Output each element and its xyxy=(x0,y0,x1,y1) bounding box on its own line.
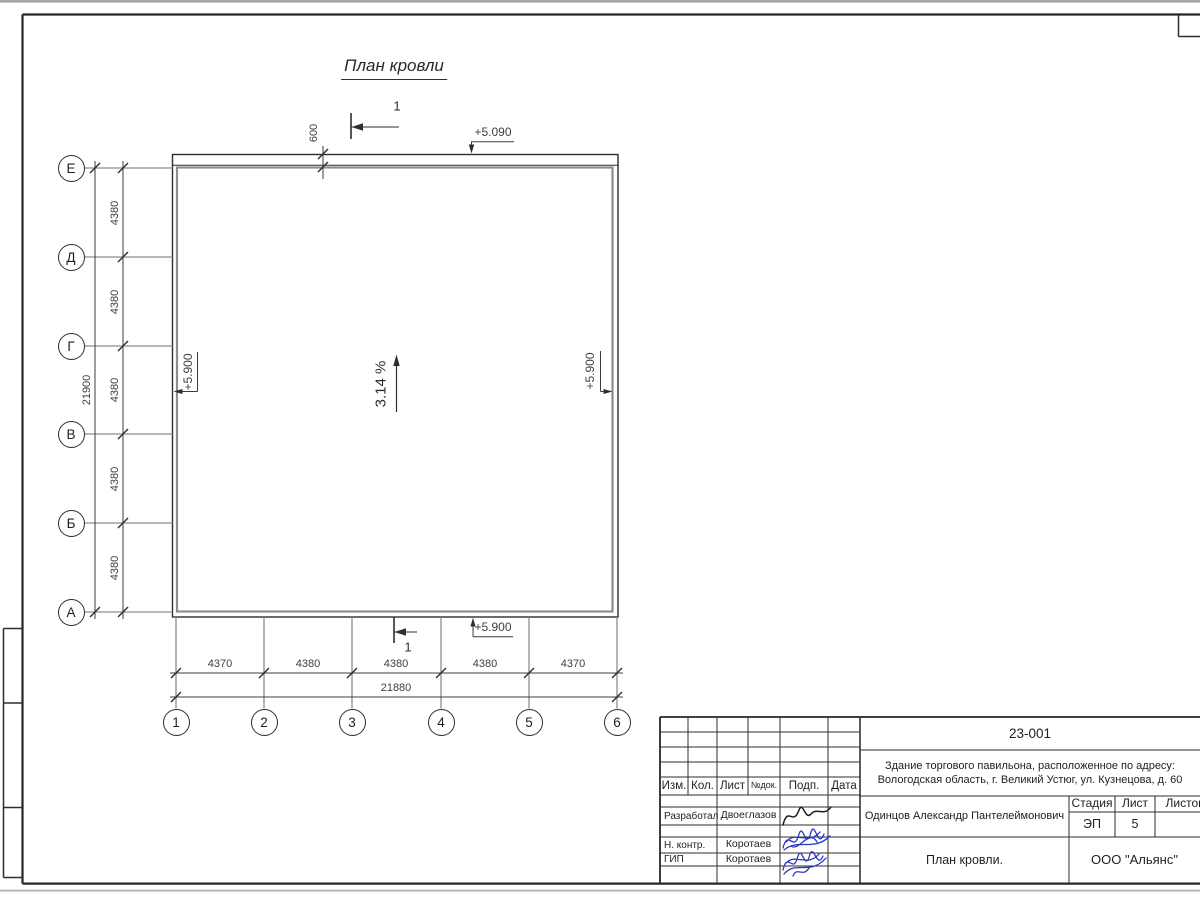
axis-circle-col-3: 3 xyxy=(339,709,366,736)
col-dim-label: 4380 xyxy=(296,658,320,670)
row-dim-label: 4380 xyxy=(109,200,121,224)
row-total-dim-label: 21900 xyxy=(81,375,93,406)
tb-sheet-value: 5 xyxy=(1115,812,1155,837)
col-dim-label: 4370 xyxy=(208,658,232,670)
tb-role-nkontr: Н. контр. xyxy=(660,837,717,853)
col-dim-label: 4370 xyxy=(561,658,585,670)
axis-circle-row-e: Е xyxy=(58,155,85,182)
tb-name-gip: Коротаев xyxy=(717,853,780,866)
overhang-dim-label: 600 xyxy=(308,124,320,142)
axis-circle-col-6: 6 xyxy=(604,709,631,736)
tb-col-header-izm: Изм. xyxy=(660,777,688,795)
slope-label: 3.14 % xyxy=(373,361,390,408)
tb-object-address: Здание торгового павильона, расположенно… xyxy=(860,750,1200,796)
tb-sheet-title: План кровли. xyxy=(860,837,1069,883)
row-dim-label: 4380 xyxy=(109,378,121,402)
axis-circle-row-b: Б xyxy=(58,510,85,537)
signature-gip xyxy=(779,846,833,880)
axis-label: 5 xyxy=(525,715,533,730)
tb-role-gip: ГИП xyxy=(660,853,717,866)
elevation-left-label: +5.900 xyxy=(181,353,195,390)
tb-approver: Одинцов Александр Пантелеймонович xyxy=(860,796,1069,837)
axis-circle-row-v: В xyxy=(58,421,85,448)
tb-col-header-list: Лист xyxy=(717,777,748,795)
tb-name-razrabotal: Двоеглазов xyxy=(717,807,780,825)
axis-label: Д xyxy=(66,250,75,265)
axis-circle-col-1: 1 xyxy=(163,709,190,736)
tb-col-header-data: Дата xyxy=(828,777,860,795)
row-dim-label: 4380 xyxy=(109,555,121,579)
axis-label: Е xyxy=(66,161,75,176)
tb-sheets-label: Листов xyxy=(1155,796,1200,812)
col-dim-label: 4380 xyxy=(473,658,497,670)
axis-label: А xyxy=(66,605,75,620)
elevation-bottom-label: +5.900 xyxy=(474,620,511,634)
axis-label: В xyxy=(66,427,75,442)
axis-circle-row-a: А xyxy=(58,599,85,626)
axis-label: 6 xyxy=(613,715,621,730)
tb-stage-label: Стадия xyxy=(1069,796,1115,812)
col-dim-label: 4380 xyxy=(384,658,408,670)
axis-label: Г xyxy=(67,339,74,354)
axis-label: 2 xyxy=(260,715,268,730)
tb-sheets-value xyxy=(1155,812,1200,837)
col-total-dim-label: 21880 xyxy=(381,682,412,694)
tb-company: ООО "Альянс" xyxy=(1069,837,1200,883)
section-mark-bottom-label: 1 xyxy=(404,640,411,655)
axis-circle-col-4: 4 xyxy=(428,709,455,736)
tb-stage-value: ЭП xyxy=(1069,812,1115,837)
section-mark-top-label: 1 xyxy=(393,99,400,114)
axis-circle-col-2: 2 xyxy=(251,709,278,736)
axis-circle-col-5: 5 xyxy=(516,709,543,736)
row-dim-label: 4380 xyxy=(109,466,121,490)
axis-circle-row-d: Д xyxy=(58,244,85,271)
tb-name-nkontr: Коротаев xyxy=(717,837,780,853)
tb-col-header-podp: Подп. xyxy=(780,777,828,795)
axis-label: Б xyxy=(67,516,76,531)
drawing-sheet: План кровли +5.090 +5.900 +5.900 +5.900 … xyxy=(0,0,1200,900)
axis-label: 1 xyxy=(172,715,180,730)
tb-doc-number: 23-001 xyxy=(860,717,1200,750)
tb-address-line1: Здание торгового павильона, расположенно… xyxy=(885,759,1175,773)
tb-role-razrabotal: Разработал xyxy=(660,807,717,825)
plan-title: План кровли xyxy=(341,56,447,80)
tb-col-header-kol: Кол. xyxy=(688,777,717,795)
tb-col-header-ndok: №док. xyxy=(748,777,780,795)
axis-label: 4 xyxy=(437,715,445,730)
elevation-top-label: +5.090 xyxy=(474,125,511,139)
tb-sheet-label: Лист xyxy=(1115,796,1155,812)
axis-circle-row-g: Г xyxy=(58,333,85,360)
row-dim-label: 4380 xyxy=(109,289,121,313)
axis-label: 3 xyxy=(348,715,356,730)
elevation-right-label: +5.900 xyxy=(583,352,597,389)
tb-address-line2: Вологодская область, г. Великий Устюг, у… xyxy=(878,773,1183,787)
